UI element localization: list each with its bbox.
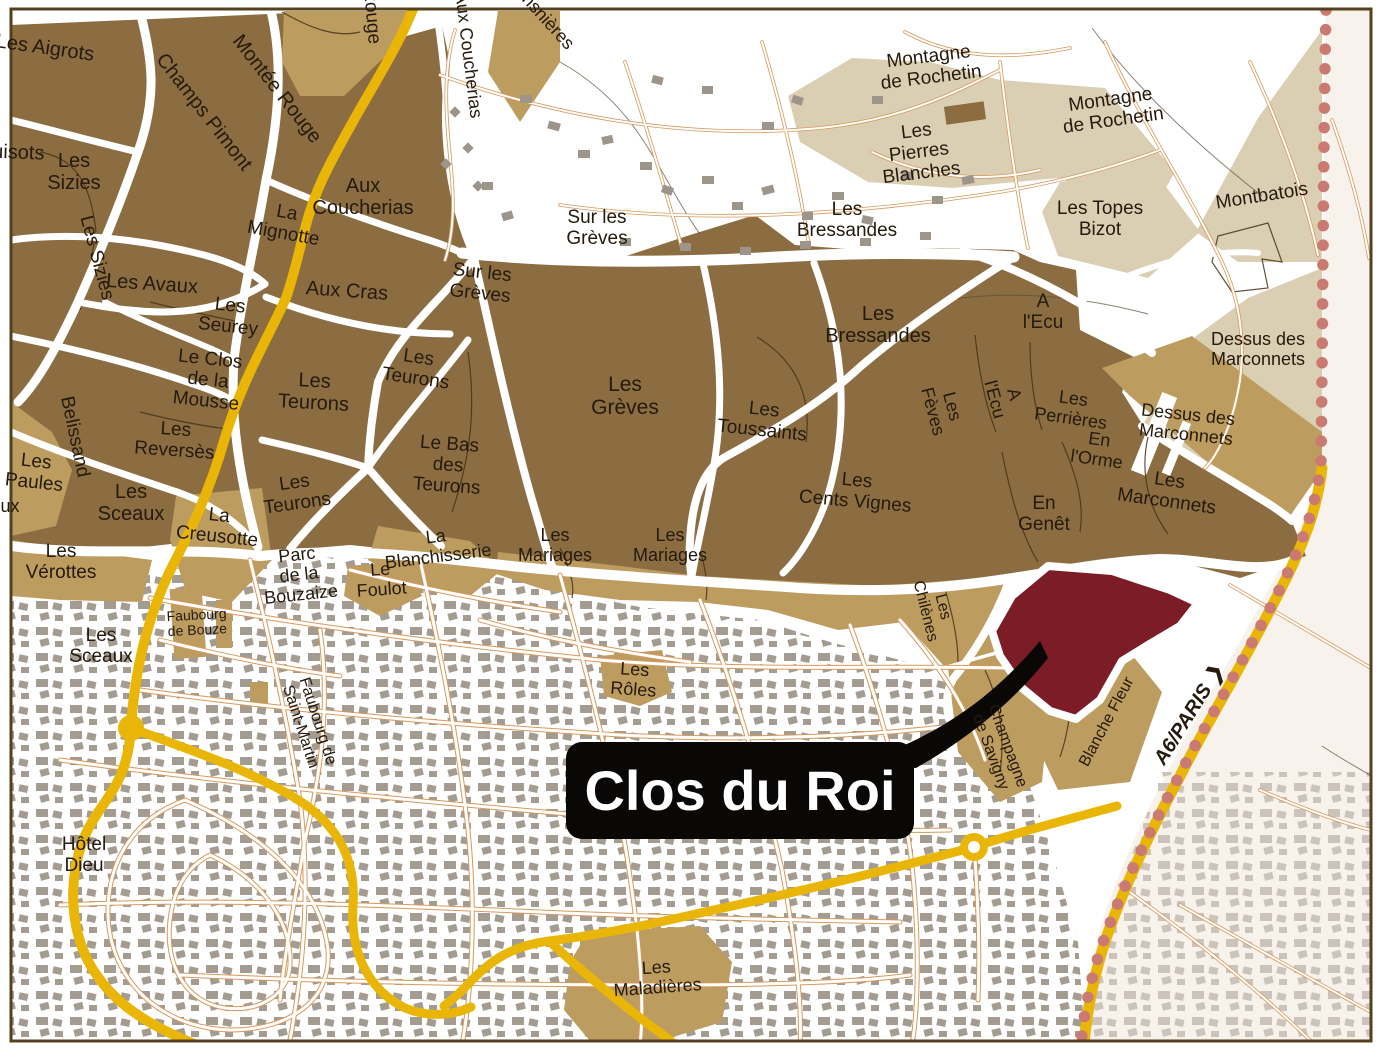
road-junction — [118, 715, 144, 741]
map-canvas — [0, 0, 1380, 1056]
beaune-vineyard-map: Clos du Roi Les AigrotsChamps PimontMont… — [0, 0, 1380, 1056]
roundabout — [964, 837, 984, 857]
